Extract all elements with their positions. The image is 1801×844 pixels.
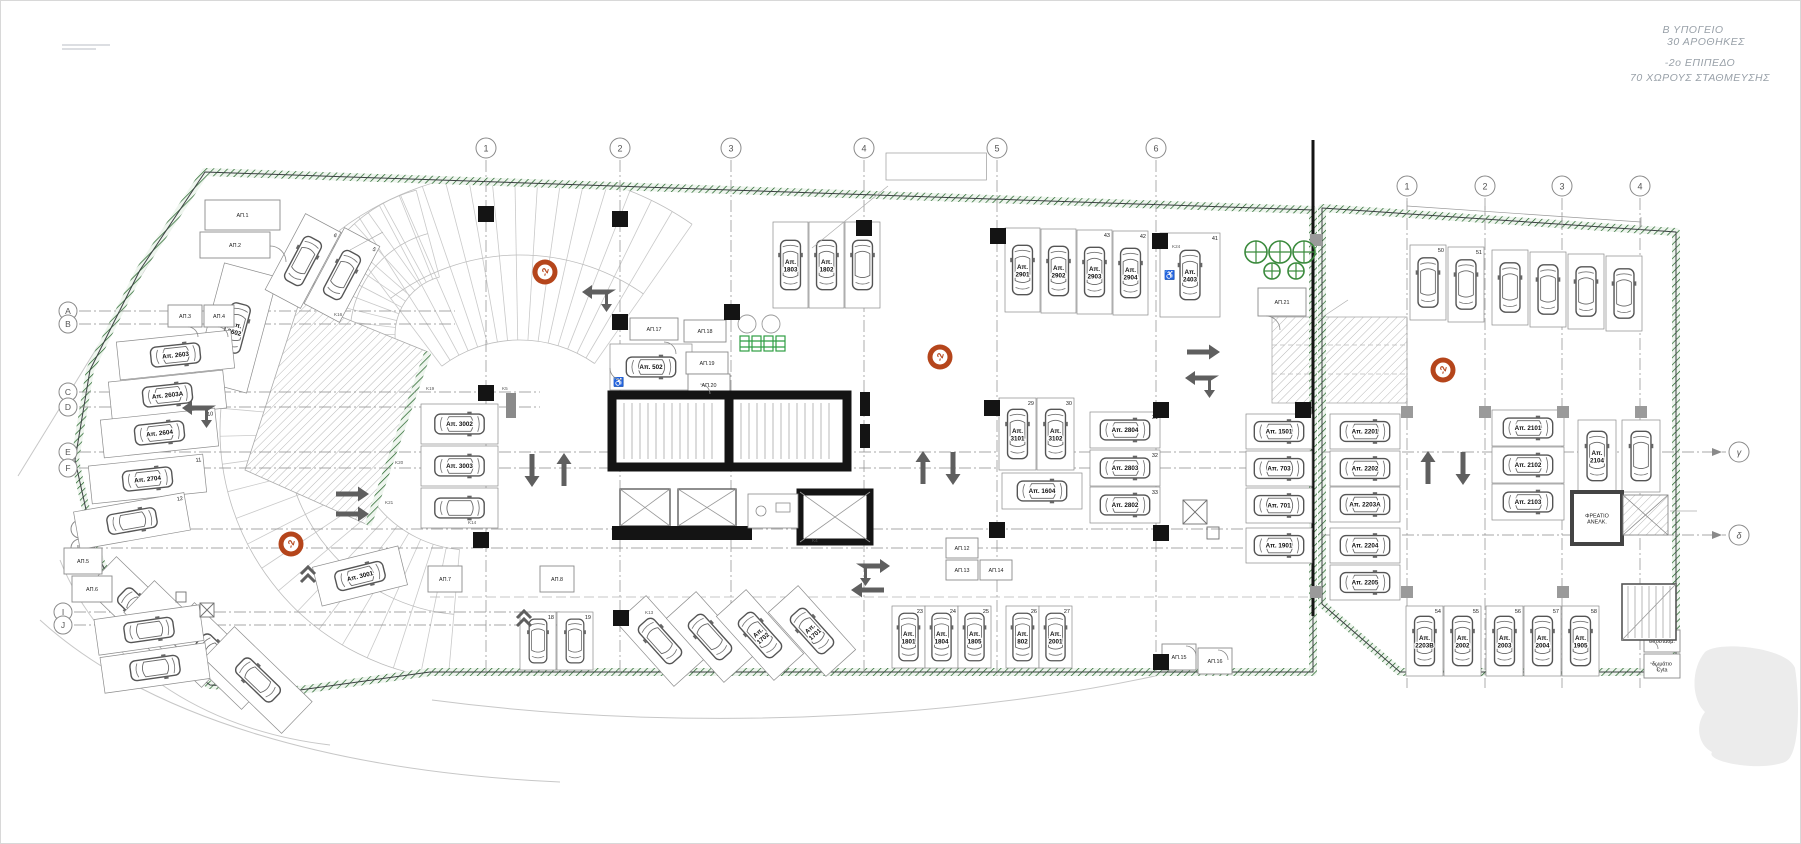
storage-room: ΑΠ.13 [946,560,978,580]
room-label: ΑΠ.17 [647,327,662,333]
parking-stall: Απ. 2201 [1330,414,1400,449]
parking-stall: Απ. 2202 [1330,451,1400,486]
vent-shaft-x [1623,495,1668,535]
parking-stall: Απ.200255 [1444,606,1481,676]
column [724,304,740,320]
parking-stall: Απ. 2101 [1492,410,1564,446]
room-label: ΑΠ.3 [179,314,191,320]
stall-number: 23 [917,609,923,615]
room-label: ΑΠ.1 [237,213,249,219]
stall-number: 18 [548,615,554,621]
planting-vent-icon [1264,263,1280,279]
stall-label: Απ.2903 [1087,266,1102,281]
notes-layer [886,153,986,180]
column [1479,406,1491,418]
column [612,211,628,227]
column [1557,586,1569,598]
column [989,522,1005,538]
storage-room: ΑΠ.3 [168,305,202,327]
column [1153,654,1169,670]
title-line-4: 70 ΧΩΡΟΥΣ ΣΤΑΘΜΕΥΣΗΣ [1630,72,1770,84]
stall-label: Απ.1905 [1573,635,1588,650]
room-label: ΦΡΕΑΤΙΟΑΝΕΛΚ. [1585,514,1609,526]
stall-number: 29 [1028,401,1034,407]
parking-stall: Απ.80226 [1006,606,1039,668]
column [1310,586,1322,598]
parking-stall: Απ. 2204 [1330,528,1400,563]
parking-stall: Απ.200127 [1039,606,1072,668]
parking-stall [1492,250,1528,325]
accessible-icon: ♿ [1164,269,1175,280]
column [1401,406,1413,418]
storage-room: ΑΠ.2 [200,232,270,258]
stall-label: Απ.2901 [1015,264,1030,279]
grid-bubble-label: 4 [1637,182,1642,192]
parking-stall [1606,256,1642,331]
column [478,385,494,401]
column [612,314,628,330]
storage-room: ΑΠ.6 [72,576,112,602]
stall-label: Απ. 3003 [446,463,473,470]
grid-bubble-label: 6 [1153,144,1158,154]
stall-label: Απ. 502 [639,364,663,371]
floor-plan-drawing: Β ΥΠΟΓΕΙΟ 30 ΑΡΟΘΗΚΕΣ -2ο ΕΠΙΠΕΔΟ 70 ΧΩΡ… [0,0,1801,844]
column [1401,586,1413,598]
stall-number: 50 [1438,248,1444,254]
stall-number: 12 [176,496,183,503]
car-icon [1629,431,1654,480]
stall-label: Απ. 1604 [1029,488,1056,495]
stall-number: 58 [1591,609,1597,615]
stall-label: Απ. 703 [1267,466,1291,473]
stall-number: 25 [983,609,989,615]
stall-label: Απ.2904 [1123,267,1138,282]
parking-stall: Απ. 2102 [1492,447,1564,483]
stall-number: 42 [1140,234,1146,240]
stall-label: Απ.3102 [1048,428,1063,443]
parking-stall [421,488,498,528]
car-icon [435,496,484,521]
stall-number: 56 [1515,609,1521,615]
room-label: ΑΠ.21 [1275,300,1290,306]
grid-bubble-label: γ [1737,448,1742,458]
parking-stall: Απ. 1901 [1246,528,1312,563]
parking-stall: Απ.310230 [1037,398,1074,470]
column [473,532,489,548]
room-label: ΑΠ.20 [702,383,717,389]
room-label: ΑΠ.18 [698,329,713,335]
parking-stall: Απ.200356 [1486,606,1523,676]
stall-label: Απ. 2202 [1352,466,1379,473]
level-badge: -2 [279,532,304,557]
stall-label: Απ. 2803 [1112,465,1139,472]
parking-stall: Απ. 2103 [1492,484,1564,520]
storage-room: ΑΠ.16 [1198,648,1232,674]
stall-label: Απ.2002 [1455,635,1470,650]
column-label: K19 [426,386,435,391]
grid-bubble-label: 3 [728,144,733,154]
column [856,220,872,236]
grid-bubble-label: 2 [617,144,622,154]
room-label: ΑΠ.13 [955,568,970,574]
column-label: K16 [334,312,343,317]
storage-room: ΑΠ.19 [686,352,728,374]
grid-bubble-label: 1 [1404,182,1409,192]
stall-label: Απ. 2205 [1352,580,1379,587]
parking-stall: Απ.1803 [773,222,808,308]
parking-stall: Απ.2902 [1041,229,1076,313]
column [613,610,629,626]
storage-room: ΑΠ.8 [540,566,574,592]
parking-stall: 19 [557,612,593,670]
stall-label: Απ. 2102 [1515,462,1542,469]
storage-room: ΦΡΕΑΤΙΟΑΝΕΛΚ. [1572,492,1622,544]
parking-stall: Απ.180424 [925,606,958,668]
stall-label: Απ. 2804 [1112,427,1139,434]
column-label: K21 [385,500,394,505]
grid-bubble-label: B [65,319,71,329]
parking-stall [1568,254,1604,329]
storage-room: ΑΠ.7 [428,566,462,592]
parking-stall: Απ. 2205 [1330,565,1400,600]
storage-room: ΑΠ.17 [630,318,678,340]
storage-room: ΑΠ.12 [946,538,978,558]
parking-stall: Απ.290343 [1077,230,1112,314]
stall-label: Απ.2104 [1590,450,1605,465]
annex-ramp [1272,317,1407,403]
parking-stall: Απ.1802 [809,222,844,308]
grid-bubble-label: J [61,620,65,630]
stall-label: Απ. 1501 [1266,429,1293,436]
stall-number: 57 [1553,609,1559,615]
stall-label: Απ.1805 [967,631,982,646]
stall-number: 27 [1064,609,1070,615]
site-gray-blob [1694,646,1798,766]
car-icon [1498,263,1523,312]
stall-number: 43 [1104,233,1110,239]
parking-stall: Απ.310129 [999,398,1036,470]
wall-stub [860,392,870,416]
room-label: ΑΠ.19 [700,361,715,367]
parking-stall: Απ.2104 [1578,420,1616,492]
parking-stall: Απ. 280431 [1090,412,1160,448]
parking-stall: Απ. 280233 [1090,487,1160,523]
storage-room: ΑΠ.21 [1258,288,1306,316]
stall-label: Απ.2902 [1051,265,1066,280]
parking-stall: Απ.2901 [1005,228,1040,312]
room-label: ΑΠ.8 [551,577,563,583]
grid-bubble-label: 4 [861,144,866,154]
room-label: ΑΠ.2 [229,243,241,249]
column [1295,402,1311,418]
parking-stall [1622,420,1660,492]
parking-stall: Απ.2203Β54 [1406,606,1443,676]
grid-bubble-label: 1 [483,144,488,154]
column [1557,406,1569,418]
stall-number: 54 [1435,609,1441,615]
room-label: ΑΠ.5 [77,559,89,565]
room-label: ΑΠ.4 [213,314,225,320]
stall-label: Απ. 2802 [1112,502,1139,509]
planting-vent-icon [1288,263,1304,279]
parking-stall: 51 [1448,247,1484,322]
level-badge: -2 [928,345,953,370]
stall-label: Απ. 3002 [446,421,473,428]
parking-stall: Απ.190558 [1562,606,1599,676]
title-line-1: Β ΥΠΟΓΕΙΟ [1662,24,1723,36]
parking-stall: Απ. 1604 [1002,473,1082,509]
storage-room: ΑΠ.14 [980,560,1012,580]
parking-stall: Απ.180123 [892,606,925,668]
parking-stall: Απ. 502♿ [610,344,692,390]
parking-stall: 50 [1410,245,1446,320]
floor-plan-canvas: Β ΥΠΟΓΕΙΟ 30 ΑΡΟΘΗΚΕΣ -2ο ΕΠΙΠΕΔΟ 70 ΧΩΡ… [0,0,1801,844]
room-label: ΑΠ.15 [1172,655,1187,661]
planting-vent-icon [1269,241,1291,263]
storage-room: ΑΠ.18 [684,320,726,342]
title-line-3: -2ο ΕΠΙΠΕΔΟ [1665,57,1735,69]
annex-stair [1622,584,1676,640]
column-label: K20 [395,460,404,465]
grid-bubble-label: C [65,387,71,397]
parking-stall: Απ. 701 [1246,488,1312,523]
room-label: ΑΠ.12 [955,546,970,552]
annotation-note [886,153,986,180]
storage-room: ΑΠ.4 [204,305,234,327]
level-badge: -2 [1431,358,1456,383]
stall-label: Απ.2004 [1535,635,1550,650]
column [1153,525,1169,541]
parking-stall: Απ. 280332 [1090,450,1160,486]
parking-stall: Απ. 3003 [421,446,498,486]
stall-label: Απ.1801 [901,631,916,646]
grid-bubble-label: E [65,447,71,457]
car-icon [1612,269,1637,318]
stall-label: Απ. 1901 [1266,543,1293,550]
stall-label: Απ.1802 [819,259,834,274]
parking-stall: Απ. 3002 [421,404,498,444]
car-icon [850,240,875,289]
grid-bubble-label: 5 [994,144,999,154]
stall-number: 26 [1031,609,1037,615]
car-icon [1416,258,1441,307]
car-icon [564,619,586,663]
planting-vent-icon [1245,241,1267,263]
stall-label: Απ.2403 [1183,269,1198,284]
parking-stall [1530,252,1566,327]
planting-vent-icon [1293,241,1315,263]
grid-bubble-label: F [65,463,70,473]
stall-label: Απ. 2203Α [1349,502,1381,509]
column [990,228,1006,244]
column [1152,233,1168,249]
parking-stall: Απ.240341♿ [1160,233,1220,317]
stall-number: 33 [1152,490,1158,496]
stall-label: Απ.3101 [1010,428,1025,443]
stall-label: Απ. 2204 [1352,543,1379,550]
storage-room: δωμάτιοCyta [1644,654,1680,678]
stall-number: 30 [1066,401,1072,407]
storage-room: ΑΠ.1 [205,200,280,230]
storage-room: ΑΠ.5 [64,548,102,574]
parking-stall: Απ.200457 [1524,606,1561,676]
stall-number: 41 [1212,236,1218,242]
column [1635,406,1647,418]
stall-number: 24 [950,609,956,615]
stall-number: 51 [1476,250,1482,256]
room-label: ΑΠ.6 [86,587,98,593]
room-label: ΑΠ.14 [989,568,1004,574]
grid-bubble-label: 2 [1482,182,1487,192]
column [1153,402,1169,418]
car-icon [1574,267,1599,316]
grid-bubble-label: 3 [1559,182,1564,192]
stall-number: 32 [1152,453,1158,459]
parking-stall: Απ.290442 [1113,231,1148,315]
stall-label: Απ.802 [1017,631,1028,646]
parking-stall: Απ. 703 [1246,451,1312,486]
stall-label: Απ.1804 [934,631,949,646]
stall-label: Απ.2003 [1497,635,1512,650]
car-icon [1536,265,1561,314]
stall-label: Απ. 701 [1267,503,1291,510]
column [984,400,1000,416]
stall-label: Απ. 2101 [1515,425,1542,432]
parking-stall: Απ.180525 [958,606,991,668]
wall-stub [860,424,870,448]
parking-stall: Απ. 1501 [1246,414,1312,449]
stall-number: 55 [1473,609,1479,615]
column-label: K14 [468,520,477,525]
column-label: K5 [502,386,508,391]
car-icon [1454,260,1479,309]
stall-number: 19 [585,615,591,621]
stall-label: Απ. 2201 [1352,429,1379,436]
stall-label: Απ. 2103 [1515,499,1542,506]
column [478,206,494,222]
room-label: ΑΠ.7 [439,577,451,583]
parking-stall: Απ. 2203Α [1330,487,1400,522]
title-line-2: 30 ΑΡΟΘΗΚΕΣ [1667,36,1745,48]
column-label: K24 [1172,244,1181,249]
room-label: ΑΠ.16 [1208,659,1223,665]
stall-label: Απ.1803 [783,259,798,274]
stall-label: Απ.2001 [1048,631,1063,646]
level-badge: -2 [533,260,558,285]
column-label: K13 [645,610,654,615]
column-label: K4 [812,538,818,543]
grid-bubble-label: D [65,402,71,412]
stall-number: 11 [195,457,201,464]
